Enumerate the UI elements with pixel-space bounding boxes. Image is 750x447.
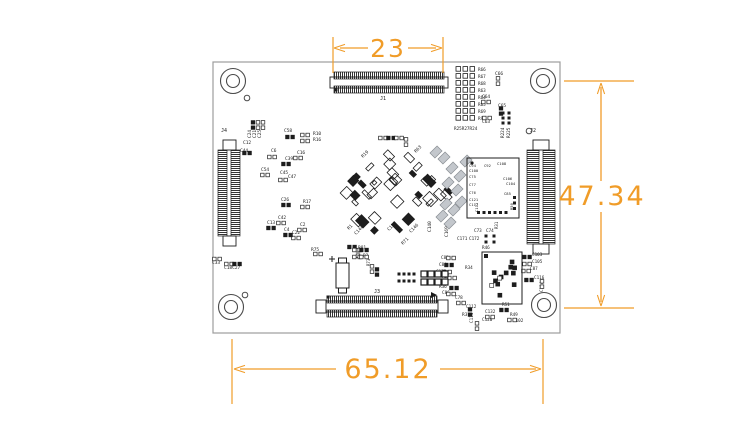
board-shape xyxy=(267,226,271,230)
component-label-R31: R31 xyxy=(494,221,499,229)
board-shape xyxy=(499,107,503,111)
board-shape xyxy=(486,315,490,319)
pad-dot xyxy=(485,241,488,244)
board-shape xyxy=(468,308,472,312)
board-shape xyxy=(540,285,544,289)
board-shape xyxy=(291,135,295,139)
board-shape xyxy=(494,211,497,214)
board-shape xyxy=(306,205,310,209)
board-shape xyxy=(261,173,265,177)
board-shape xyxy=(523,262,527,266)
component-label-R34: R34 xyxy=(465,265,473,271)
board-shape xyxy=(513,207,516,210)
dimension-bottom: 65.12 xyxy=(232,339,543,404)
pad-dot xyxy=(485,235,488,238)
board-shape xyxy=(483,211,486,214)
jumper-pad xyxy=(428,271,434,277)
board-shape xyxy=(387,136,391,140)
component-label-R69: R69 xyxy=(478,109,486,115)
board-shape xyxy=(297,236,301,240)
component-label-C4: C4 xyxy=(284,227,290,233)
board-shape xyxy=(487,100,491,104)
board-shape xyxy=(450,263,454,267)
board-shape xyxy=(353,248,357,252)
board-shape xyxy=(488,116,492,120)
board-shape xyxy=(375,273,379,277)
board-shape xyxy=(243,151,247,155)
board-shape xyxy=(475,327,479,331)
board-shape xyxy=(528,255,532,259)
component-label-R63: R63 xyxy=(478,88,486,94)
component-label-C39: C39 xyxy=(285,156,293,162)
jumper-pad xyxy=(442,279,448,285)
resistor-pad xyxy=(463,102,468,107)
resistor-pad xyxy=(463,109,468,114)
resistor-pad xyxy=(463,116,468,121)
jumper-pad xyxy=(442,271,448,277)
ic2-notch xyxy=(484,254,488,258)
board-shape xyxy=(268,155,272,159)
board-shape xyxy=(248,151,252,155)
board-shape xyxy=(233,262,237,266)
board-shape xyxy=(370,265,374,269)
board-shape xyxy=(251,126,255,130)
board-shape xyxy=(496,282,500,286)
board-graphics: J1J2J3J4R66R67R68R63R64R65R69R90R25R27R2… xyxy=(212,62,560,333)
pad-dot xyxy=(413,273,416,276)
board-shape xyxy=(523,255,527,259)
board-shape xyxy=(468,313,472,317)
board-shape xyxy=(353,255,357,259)
component-label-C87: C87 xyxy=(530,266,538,272)
jumper-pad xyxy=(421,271,427,277)
board-shape xyxy=(528,262,532,266)
component-label-R68: R68 xyxy=(478,81,486,87)
board-shape xyxy=(490,283,494,287)
board-shape xyxy=(266,173,270,177)
component-label-C13: C13 xyxy=(267,220,275,226)
pad-dot xyxy=(508,117,511,120)
board-shape xyxy=(505,308,509,312)
board-shape xyxy=(272,226,276,230)
board-shape xyxy=(488,211,491,214)
board-shape xyxy=(450,286,454,290)
jumper-pad xyxy=(421,279,427,285)
component-label-R10: R10 xyxy=(313,131,321,137)
resistor-pad xyxy=(463,81,468,86)
board-shape xyxy=(462,301,466,305)
resistor-pad xyxy=(456,95,461,100)
component-label-C47: C47 xyxy=(288,174,296,180)
board-shape xyxy=(445,263,449,267)
board-shape xyxy=(527,150,539,244)
pad-dot xyxy=(335,89,338,92)
ic-pin1-dot xyxy=(470,161,473,164)
component-label-C108: C108 xyxy=(497,161,507,166)
pad-dot xyxy=(502,112,505,115)
component-label-C66: C66 xyxy=(495,71,503,77)
board-shape xyxy=(261,121,265,125)
board-shape xyxy=(477,211,480,214)
component-label-C111: C111 xyxy=(474,202,479,212)
board-shape xyxy=(286,135,290,139)
board-shape xyxy=(365,255,369,259)
pad-dot xyxy=(327,296,330,299)
board-shape xyxy=(510,260,514,264)
pad-dot xyxy=(502,122,505,125)
board-shape xyxy=(491,315,495,319)
resistor-pad xyxy=(456,67,461,72)
jumper-pad xyxy=(428,279,434,285)
component-label-C85: C85 xyxy=(504,191,511,196)
board-shape xyxy=(251,121,255,125)
connector-label-j4: J4 xyxy=(221,128,227,134)
board-shape xyxy=(496,82,500,86)
component-label-C76: C76 xyxy=(469,190,477,195)
component-label-R51: R51 xyxy=(502,302,510,308)
board-shape xyxy=(287,203,291,207)
board-shape xyxy=(513,318,517,322)
board-shape xyxy=(334,72,444,79)
component-label-C77: C77 xyxy=(469,182,476,187)
board-shape xyxy=(505,211,508,214)
component-label-C58: C58 xyxy=(284,128,292,134)
board-shape xyxy=(279,178,283,182)
component-label-C26: C26 xyxy=(281,197,289,203)
board-shape xyxy=(543,150,555,244)
board-shape xyxy=(282,221,286,225)
board-shape xyxy=(284,178,288,182)
pad-dot xyxy=(502,117,505,120)
component-label-C42: C42 xyxy=(278,215,286,221)
board-shape xyxy=(404,143,408,147)
dimension-right: 47.34 xyxy=(558,81,645,308)
resistor-pad xyxy=(463,95,468,100)
board-shape xyxy=(513,266,517,270)
board-shape xyxy=(301,139,305,143)
board-shape xyxy=(287,162,291,166)
board-shape xyxy=(256,126,260,130)
component-label-C12: C12 xyxy=(243,140,251,146)
pad-dot xyxy=(403,273,406,276)
board-shape xyxy=(301,205,305,209)
component-label-R67: R67 xyxy=(478,74,486,80)
resistor-pad xyxy=(470,95,475,100)
pad-dot xyxy=(408,280,411,283)
component-label-R66: R66 xyxy=(478,67,486,73)
board-shape xyxy=(455,286,459,290)
resistor-pad xyxy=(456,109,461,114)
dim-bottom-label: 65.12 xyxy=(344,354,431,385)
component-label-C6: C6 xyxy=(271,148,277,154)
component-label-C171: C171 xyxy=(457,236,468,242)
component-label-C78: C78 xyxy=(455,295,463,301)
board-shape xyxy=(360,248,364,252)
board-shape xyxy=(447,256,451,260)
component-label-R17: R17 xyxy=(303,199,311,205)
resistor-pad xyxy=(456,81,461,86)
component-label-R25R27R24: R25R27R24 xyxy=(454,126,478,132)
resistor-pad xyxy=(456,116,461,121)
board-shape xyxy=(256,121,260,125)
component-label-C132: C132 xyxy=(485,309,496,315)
pcb-svg: J1J2J3J4R66R67R68R63R64R65R69R90R25R27R2… xyxy=(0,0,750,447)
board-shape xyxy=(527,269,531,273)
connector-label-j2: J2 xyxy=(530,128,536,134)
board-shape xyxy=(223,140,236,150)
board-shape xyxy=(301,133,305,137)
board-shape xyxy=(530,278,534,282)
board-shape xyxy=(512,283,516,287)
component-label-C64: C64 xyxy=(482,94,490,100)
board-shape xyxy=(282,203,286,207)
component-label-C25: C25 xyxy=(257,130,263,138)
board-shape xyxy=(218,257,222,261)
board-shape xyxy=(540,280,544,284)
resistor-pad xyxy=(463,74,468,79)
board-shape xyxy=(498,293,502,297)
component-label-R225: R225 xyxy=(506,127,512,138)
board-shape xyxy=(370,270,374,274)
component-label-C75: C75 xyxy=(469,174,476,179)
resistor-pad xyxy=(470,67,475,72)
component-label-C140: C140 xyxy=(427,221,433,232)
board-shape xyxy=(213,257,217,261)
board-shape xyxy=(492,271,496,275)
pcb-dimension-drawing: J1J2J3J4R66R67R68R63R64R65R69R90R25R27R2… xyxy=(0,0,750,447)
component-label-R16: R16 xyxy=(313,137,321,143)
board-shape xyxy=(453,276,457,280)
board-shape xyxy=(327,296,437,303)
board-shape xyxy=(303,228,307,232)
board-shape xyxy=(223,236,236,246)
component-label-C73: C73 xyxy=(474,228,482,234)
board-shape xyxy=(261,126,265,130)
board-shape xyxy=(483,116,487,120)
board-shape xyxy=(525,278,529,282)
board-shape xyxy=(438,300,448,313)
resistor-pad xyxy=(456,74,461,79)
board-shape xyxy=(533,140,549,150)
component-label-C92: C92 xyxy=(484,163,491,168)
component-label-R46: R46 xyxy=(482,245,490,251)
board-shape xyxy=(225,262,229,266)
resistor-pad xyxy=(456,102,461,107)
board-shape xyxy=(496,77,500,81)
pad-dot xyxy=(413,280,416,283)
board-shape xyxy=(294,156,298,160)
board-outline xyxy=(213,62,560,333)
board-shape xyxy=(306,133,310,137)
board-shape xyxy=(334,86,444,93)
pad-dot xyxy=(508,112,511,115)
board-shape xyxy=(452,256,456,260)
pad-dot xyxy=(508,122,511,125)
board-shape xyxy=(452,292,456,296)
board-shape xyxy=(400,136,404,140)
board-shape xyxy=(500,308,504,312)
component-label-C104: C104 xyxy=(506,181,516,186)
component-label-R49: R49 xyxy=(510,312,518,318)
pad-dot xyxy=(408,273,411,276)
resistor-pad xyxy=(470,74,475,79)
pad-dot xyxy=(398,280,401,283)
board-shape xyxy=(404,138,408,142)
board-shape xyxy=(511,271,515,275)
component-label-C74: C74 xyxy=(486,228,494,234)
pad-dot xyxy=(403,280,406,283)
board-shape xyxy=(327,310,437,317)
resistor-pad xyxy=(470,102,475,107)
connector-label-j3: J3 xyxy=(374,289,380,295)
pad-dot xyxy=(493,241,496,244)
dim-right-label: 47.34 xyxy=(558,181,645,212)
resistor-pad xyxy=(470,116,475,121)
board-shape xyxy=(513,202,516,205)
resistor-pad xyxy=(470,109,475,114)
board-shape xyxy=(314,252,318,256)
board-shape xyxy=(509,265,513,269)
board-shape xyxy=(379,136,383,140)
board-shape xyxy=(218,150,227,236)
component-label-C54: C54 xyxy=(261,167,269,173)
resistor-pad xyxy=(463,88,468,93)
component-label-C172: C172 xyxy=(469,236,480,242)
board-shape xyxy=(365,248,369,252)
board-shape xyxy=(298,228,302,232)
dim-top-label: 23 xyxy=(370,34,406,63)
board-shape xyxy=(299,156,303,160)
board-shape xyxy=(395,136,399,140)
board-shape xyxy=(498,276,502,280)
board-shape xyxy=(360,255,364,259)
board-shape xyxy=(231,150,240,236)
board-shape xyxy=(504,271,508,275)
resistor-pad xyxy=(470,88,475,93)
pad-dot xyxy=(398,273,401,276)
component-label-R224: R224 xyxy=(500,127,506,138)
board-shape xyxy=(447,292,451,296)
resistor-pad xyxy=(456,88,461,93)
board-shape xyxy=(273,155,277,159)
board-shape xyxy=(282,162,286,166)
component-label-C103: C103 xyxy=(532,252,543,258)
board-shape xyxy=(457,301,461,305)
resistor-pad xyxy=(463,67,468,72)
jumper-pad xyxy=(435,279,441,285)
resistor-pad xyxy=(470,81,475,86)
board-shape xyxy=(375,268,379,272)
board-shape xyxy=(306,139,310,143)
board-shape xyxy=(284,233,288,237)
board-shape xyxy=(348,245,352,249)
board-shape xyxy=(513,196,516,199)
board-shape xyxy=(508,318,512,322)
component-label-C16: C16 xyxy=(297,150,305,156)
component-label-C100: C100 xyxy=(469,168,479,173)
component-label-C2: C2 xyxy=(300,222,306,228)
board-shape xyxy=(289,233,293,237)
board-shape xyxy=(482,100,486,104)
board-shape xyxy=(316,300,326,313)
pad-dot xyxy=(493,235,496,238)
connector-label-j1: J1 xyxy=(380,96,386,102)
board-shape xyxy=(238,262,242,266)
board-shape xyxy=(319,252,323,256)
component-label-C105: C105 xyxy=(532,259,543,265)
board-shape xyxy=(499,211,502,214)
board-shape xyxy=(475,322,479,326)
jumper-pad xyxy=(435,271,441,277)
board-shape xyxy=(277,221,281,225)
